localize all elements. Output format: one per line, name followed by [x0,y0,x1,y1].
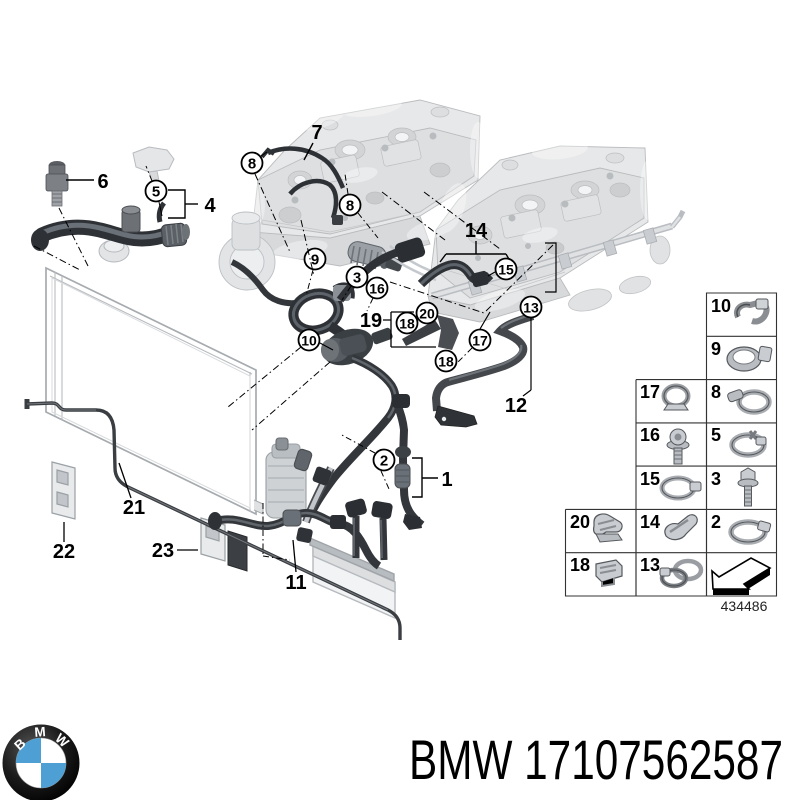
svg-text:3: 3 [353,270,361,287]
svg-text:11: 11 [285,572,306,594]
svg-text:9: 9 [711,339,721,359]
svg-text:22: 22 [53,541,75,563]
svg-text:13: 13 [523,300,539,316]
svg-text:21: 21 [123,497,145,519]
svg-text:14: 14 [465,220,488,242]
svg-text:2: 2 [380,453,388,470]
svg-text:2: 2 [711,512,721,532]
svg-text:18: 18 [399,316,415,332]
svg-text:17: 17 [472,333,488,349]
svg-text:7: 7 [311,122,322,144]
svg-text:5: 5 [152,184,160,201]
svg-text:20: 20 [419,306,435,322]
svg-text:8: 8 [711,382,721,402]
svg-text:10: 10 [301,333,317,349]
svg-text:6: 6 [97,171,108,193]
svg-text:8: 8 [248,156,256,173]
svg-text:18: 18 [438,354,454,370]
svg-text:16: 16 [369,281,385,297]
svg-text:5: 5 [711,425,721,445]
svg-text:1: 1 [441,469,452,491]
svg-text:10: 10 [711,296,731,316]
svg-text:M: M [34,724,46,740]
svg-text:19: 19 [360,310,382,332]
svg-text:434486: 434486 [721,598,768,614]
svg-text:8: 8 [346,198,354,215]
svg-text:23: 23 [152,540,174,562]
svg-text:15: 15 [498,262,514,278]
svg-text:15: 15 [640,469,660,489]
svg-text:14: 14 [640,512,660,532]
svg-text:17: 17 [640,382,660,402]
svg-text:BMW 17107562587: BMW 17107562587 [409,729,783,791]
svg-text:3: 3 [711,469,721,489]
svg-text:4: 4 [204,195,216,217]
svg-text:16: 16 [640,425,660,445]
svg-text:12: 12 [505,395,527,417]
svg-text:18: 18 [570,555,590,575]
svg-text:13: 13 [640,555,660,575]
svg-text:20: 20 [570,512,590,532]
